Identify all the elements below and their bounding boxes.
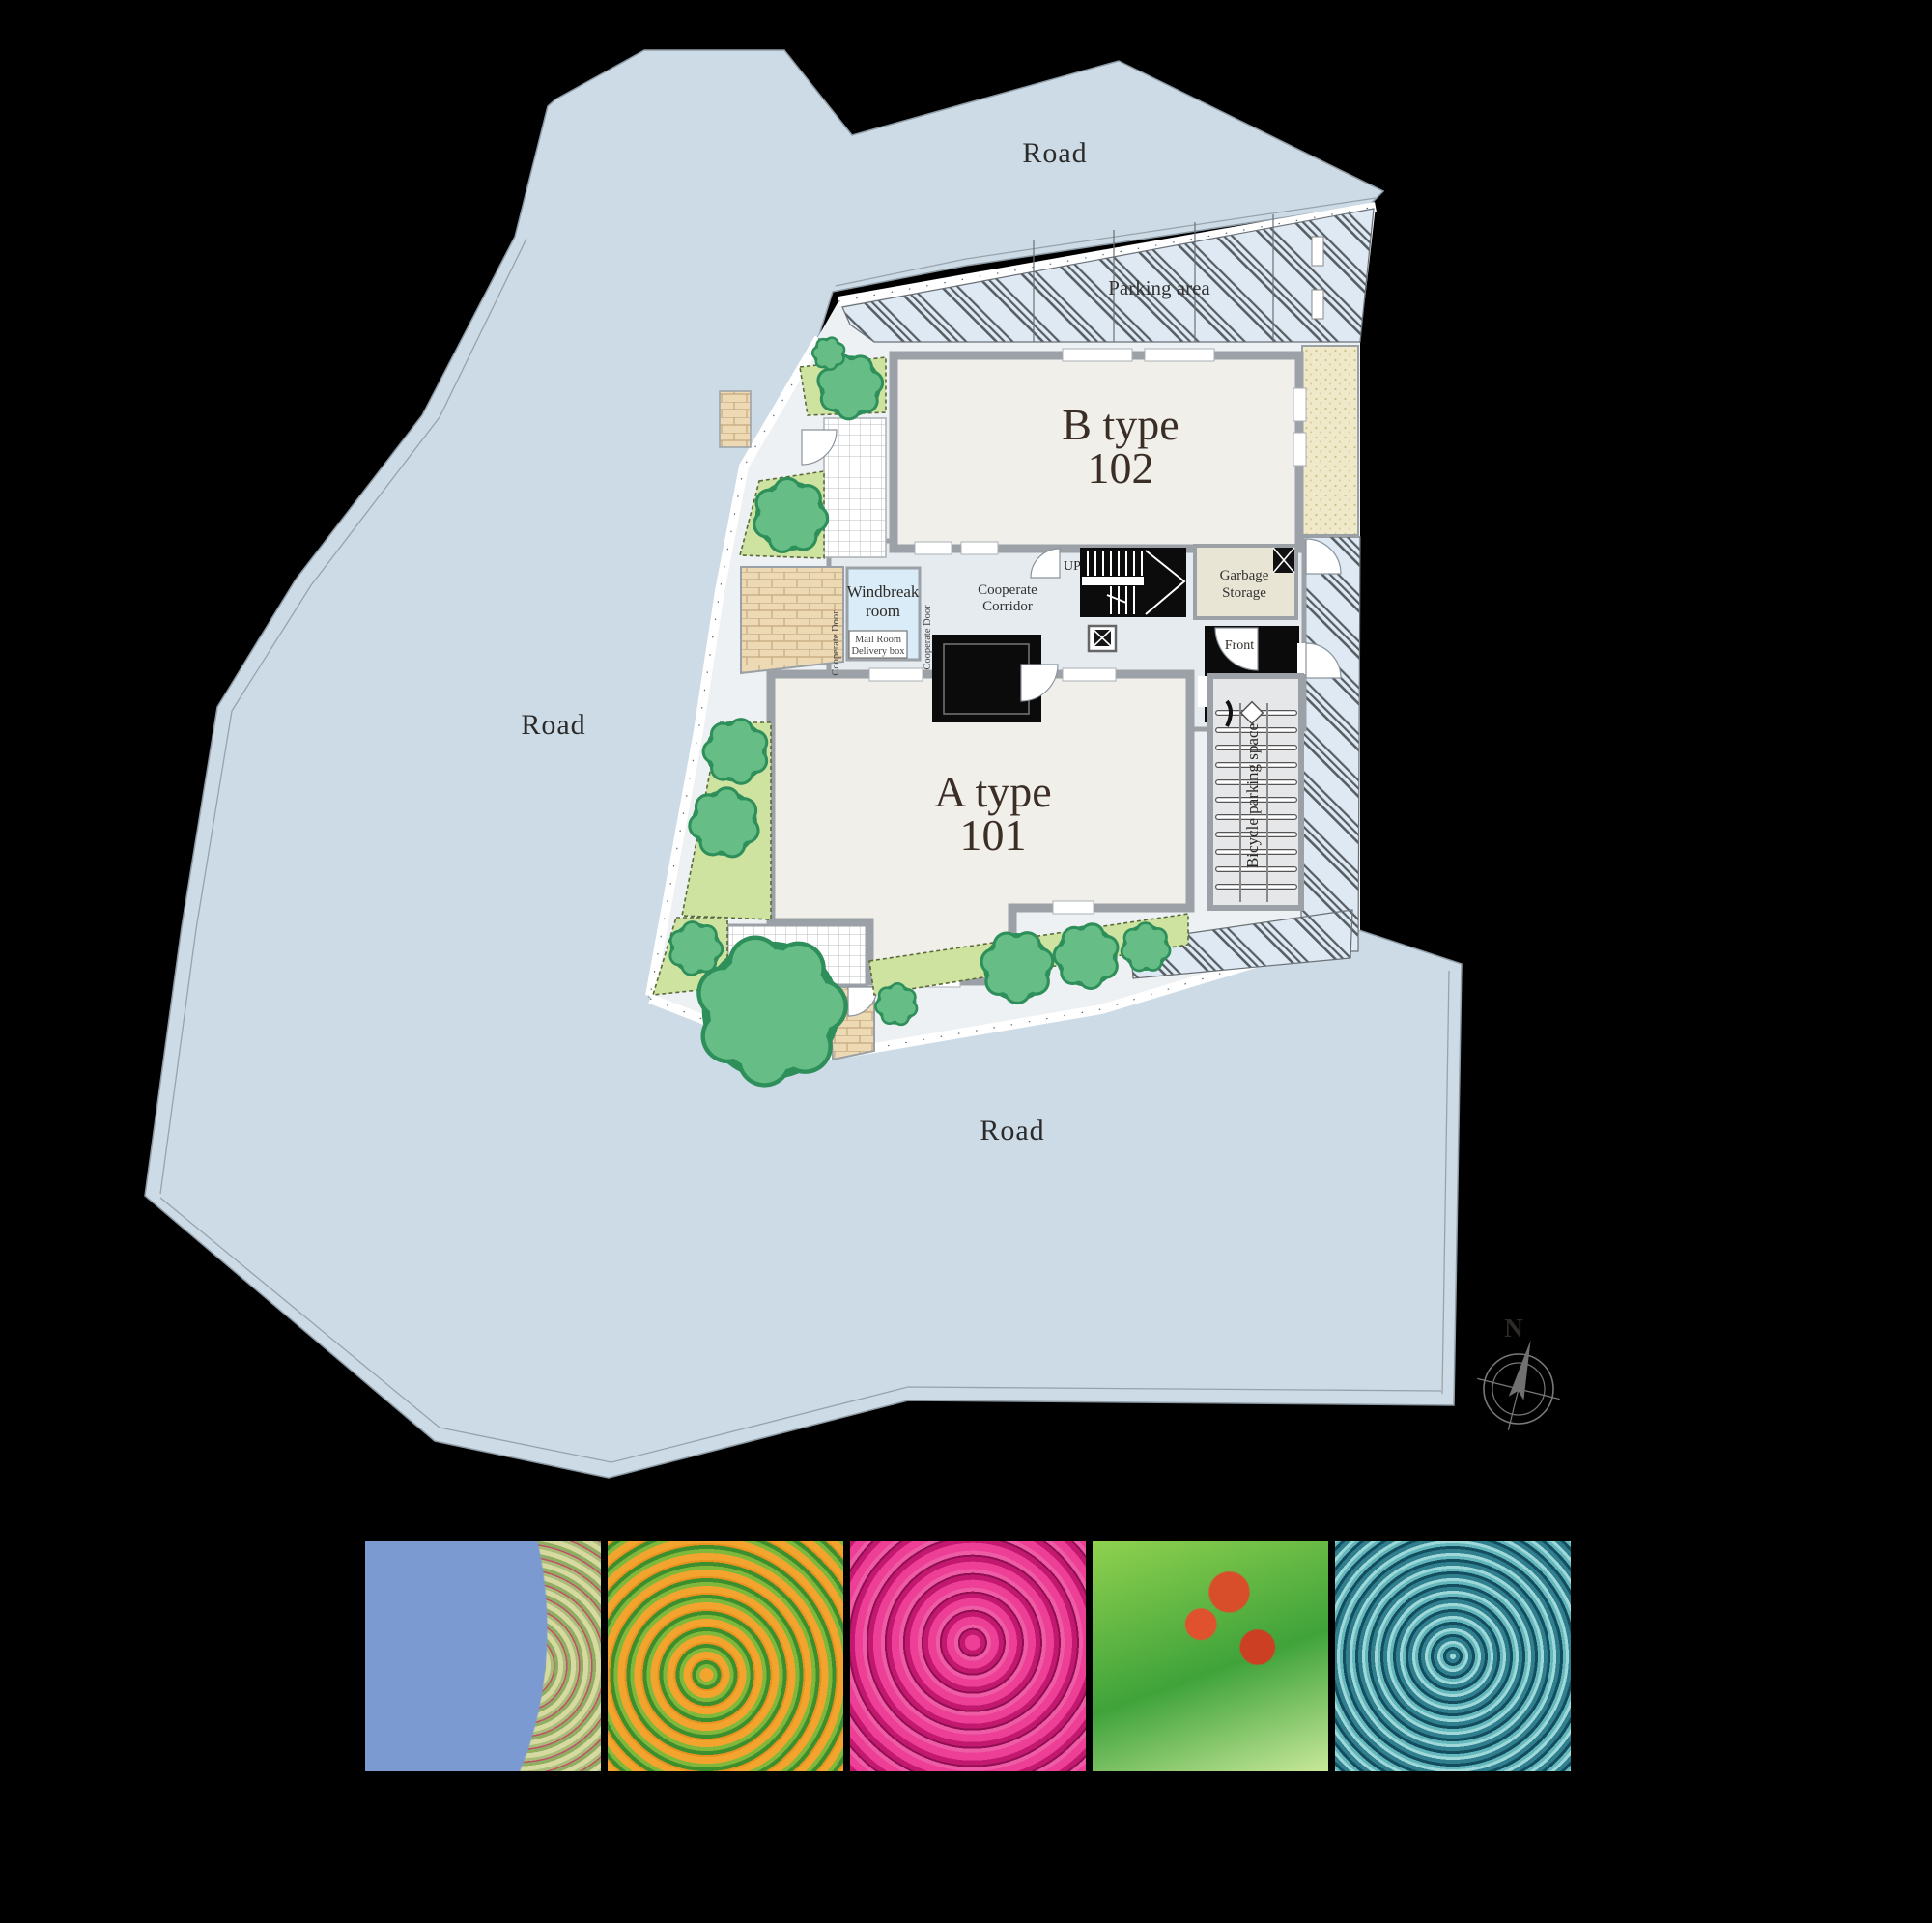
compass-n-label: N — [1504, 1314, 1523, 1343]
window — [961, 542, 998, 554]
brick-approach — [741, 567, 843, 673]
site-plan-figure: N Road Road Road Parking area B type 102… — [0, 0, 1932, 1923]
gravel-strip — [1302, 346, 1358, 535]
window — [1293, 433, 1306, 466]
orange-osmanthus-photo — [608, 1541, 843, 1771]
unit-a-number: 101 — [960, 810, 1027, 860]
mailroom-label: Mail Room — [855, 635, 901, 645]
parking-area-label: Parking area — [1108, 276, 1210, 299]
cooperate-door-right-label: Cooperate Door — [923, 605, 933, 670]
road-label-bottom: Road — [980, 1115, 1044, 1146]
window — [1145, 349, 1214, 361]
window — [1293, 388, 1306, 421]
road-label-top: Road — [1022, 137, 1087, 169]
plant-photo-strip — [365, 1541, 1571, 1771]
green-leaves-red-berries-photo — [1093, 1541, 1328, 1771]
mailroom-label2: Delivery box — [851, 646, 905, 657]
garbage-label2: Storage — [1222, 585, 1266, 601]
unit-a-label: A type — [934, 767, 1051, 816]
windbreak-label2: room — [866, 602, 900, 620]
garbage-label: Garbage — [1220, 568, 1269, 583]
wheel-stop — [1312, 237, 1323, 266]
red-berry-tree-photo — [365, 1541, 601, 1771]
staircase — [1080, 548, 1186, 617]
front-label: Front — [1225, 638, 1254, 653]
bicycle-label: Bicycle parking space — [1243, 723, 1262, 868]
windbreak-label: Windbreak — [847, 582, 920, 601]
window — [915, 542, 952, 554]
window — [869, 668, 923, 681]
pink-azalea-photo — [850, 1541, 1086, 1771]
cooperate-corridor-label: Cooperate — [978, 582, 1037, 598]
cooperate-door-left-label: Cooperate Door — [831, 610, 841, 676]
up-label: UP — [1064, 559, 1081, 574]
parking-hatch-right — [1301, 537, 1360, 951]
shaft-box — [1089, 626, 1116, 651]
window — [1063, 349, 1132, 361]
unit-b-label: B type — [1062, 400, 1179, 449]
compass: N — [1467, 1314, 1573, 1440]
window — [1053, 901, 1094, 914]
compass-needle — [1509, 1339, 1539, 1400]
blue-conifer-photo — [1335, 1541, 1571, 1771]
unit-b-number: 102 — [1088, 443, 1154, 493]
wheel-stop — [1312, 290, 1323, 319]
cooperate-corridor-label2: Corridor — [982, 599, 1033, 614]
window — [1063, 668, 1116, 681]
road-label-left: Road — [521, 709, 585, 741]
brick-patch-top — [720, 391, 751, 447]
